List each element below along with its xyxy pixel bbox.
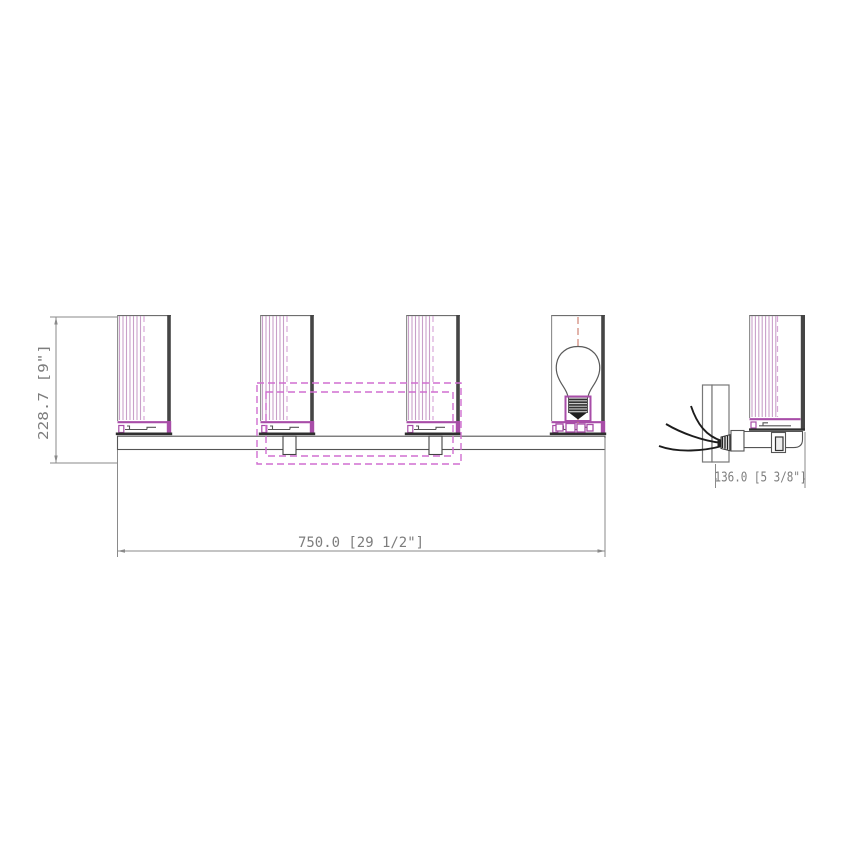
stem-right	[429, 436, 442, 454]
dimension-width-label: 750.0 [29 1/2"]	[298, 535, 424, 551]
mounting-bar	[118, 436, 606, 449]
wall-plate	[703, 385, 730, 462]
dimension-depth-label: 136.0 [5 3/8"]	[715, 471, 807, 486]
dimension-height: 228.7 [9"]	[36, 317, 118, 463]
side-shade	[749, 315, 805, 430]
dimension-height-label: 228.7 [9"]	[36, 344, 52, 440]
shade-2	[259, 315, 315, 434]
shade-1	[116, 315, 172, 434]
socket-arm-cylinder	[731, 431, 744, 452]
side-view	[659, 315, 805, 462]
drawing-canvas: 228.7 [9"] 750.0 [29 1/2"] 136.0 [5 3/8"…	[0, 0, 850, 850]
front-view	[116, 315, 606, 464]
drawing-page: 228.7 [9"] 750.0 [29 1/2"] 136.0 [5 3/8"…	[0, 0, 850, 850]
holder-detail-boxes	[556, 424, 593, 433]
shade-4	[550, 315, 606, 434]
side-stem	[772, 433, 786, 453]
stem-left	[283, 436, 296, 454]
